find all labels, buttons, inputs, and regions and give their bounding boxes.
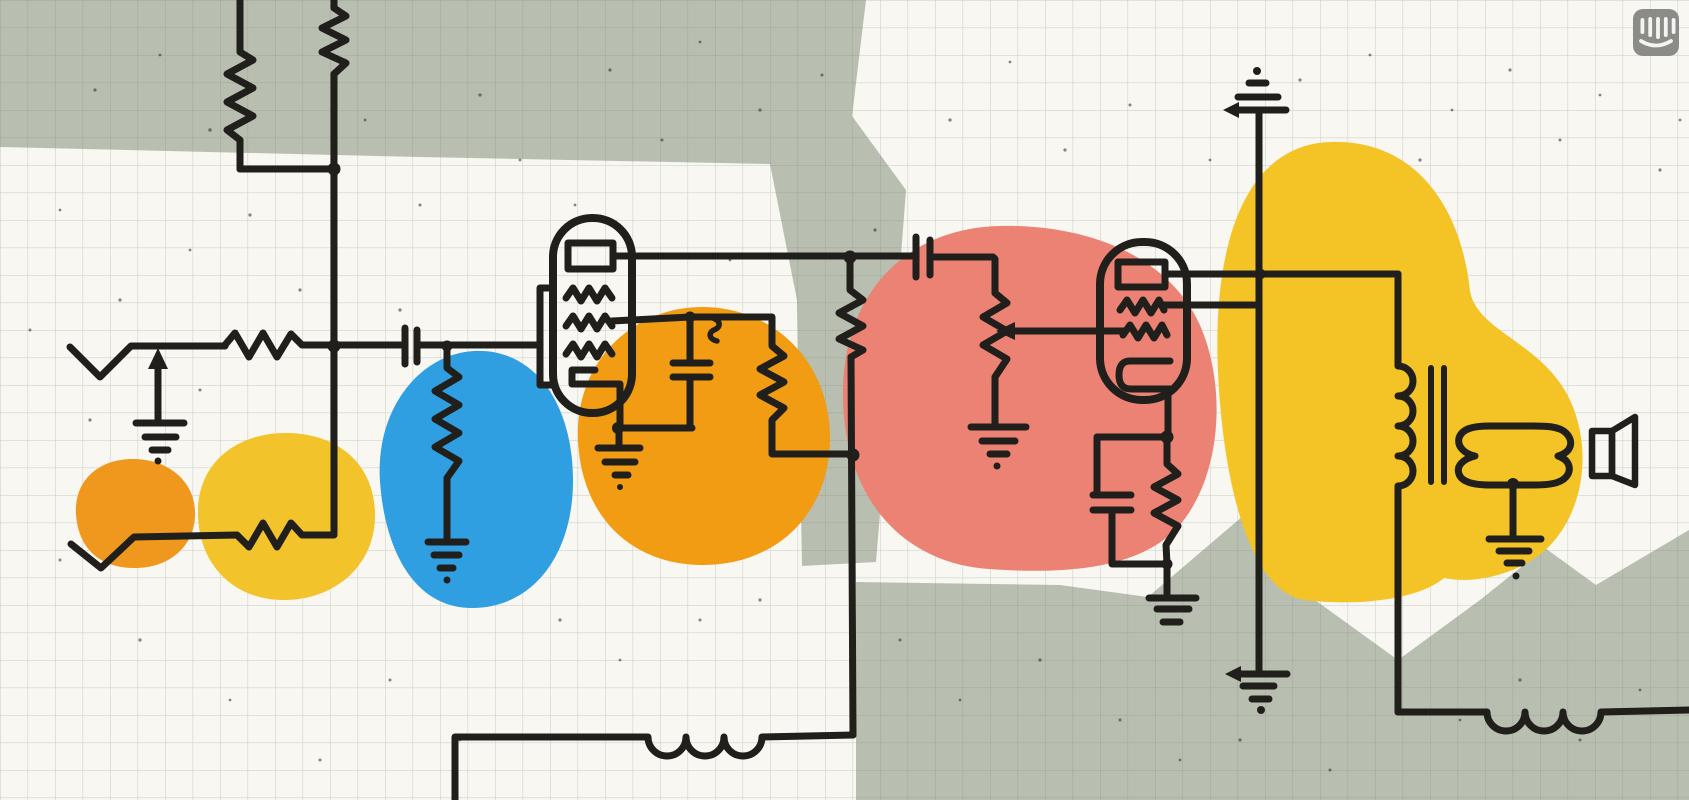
- blob-blue: [380, 351, 573, 608]
- junction-dot: [1161, 431, 1174, 444]
- blob-orange-small: [76, 459, 195, 568]
- junction-dot: [1256, 269, 1266, 279]
- artwork: [0, 0, 1689, 800]
- ground-dot: [994, 463, 1001, 470]
- artwork-canvas: [0, 0, 1689, 800]
- junction-dot: [685, 312, 696, 323]
- ground-dot: [617, 484, 623, 490]
- junction-dot: [1507, 478, 1519, 490]
- junction-dot: [847, 449, 860, 462]
- ground-dot: [1513, 573, 1520, 580]
- junction-dot: [844, 251, 857, 264]
- ground-dot: [444, 577, 451, 584]
- junction-dot: [328, 340, 341, 353]
- blob-yellow-small: [198, 433, 375, 600]
- junction-dot: [328, 163, 341, 176]
- junction-dot: [1162, 559, 1173, 570]
- junction-dot: [612, 422, 624, 434]
- terminal-dot: [1253, 67, 1261, 75]
- intercom-logo-icon: [1633, 9, 1679, 56]
- ground-dot: [1257, 706, 1265, 714]
- ground-dot: [155, 458, 162, 465]
- junction-dot: [442, 341, 453, 352]
